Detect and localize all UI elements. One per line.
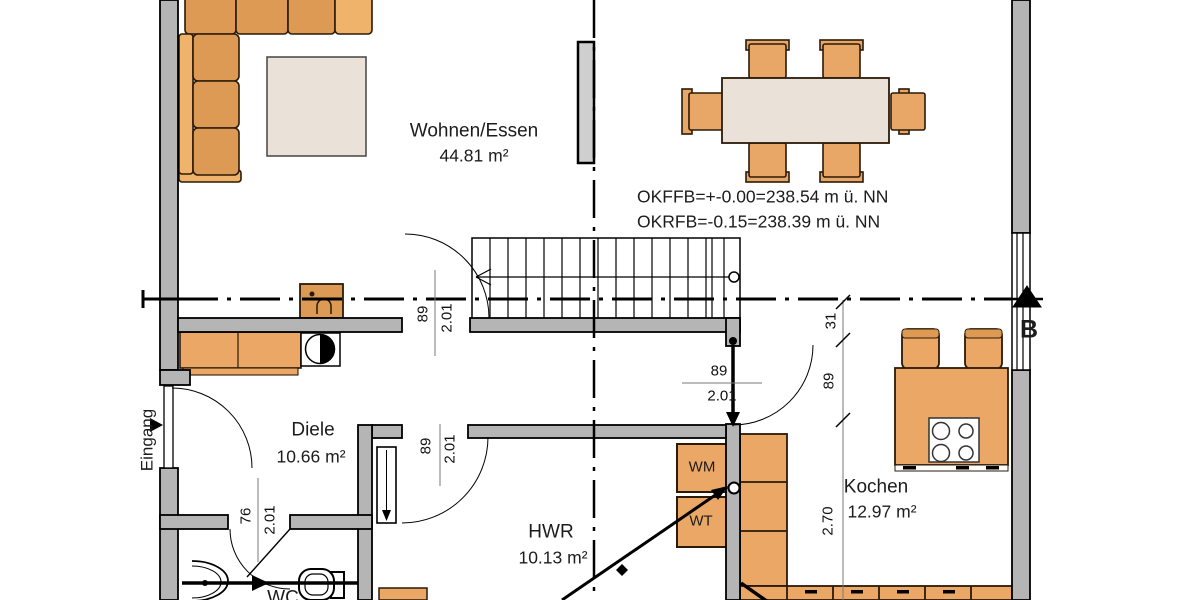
room-area-kochen: 12.97 m² <box>847 503 916 521</box>
dim-hwr-door-height: 2.01 <box>443 434 458 463</box>
cooktop-icon <box>929 418 979 462</box>
dryer-label: WT <box>689 514 712 529</box>
half-circle-symbol <box>301 333 340 366</box>
room-label-diele: Diele <box>291 421 334 440</box>
dim-kitchen-seg-b: 89 <box>822 373 837 390</box>
floor-plan: Wohnen/Essen 44.81 m² OKFFB=+-0.00=238.5… <box>0 0 1200 600</box>
dim-stair-door-width: 89 <box>416 306 431 323</box>
room-area-wohnen: 44.81 m² <box>439 147 508 165</box>
staircase <box>472 238 740 320</box>
entrance-label: Eingang <box>139 409 156 471</box>
floor-plan-canvas <box>0 0 1200 600</box>
dim-wc-door-height: 2.01 <box>263 505 278 534</box>
stove-symbol <box>300 284 343 318</box>
kitchen-island <box>895 329 1008 471</box>
dim-wc-door-width: 76 <box>239 508 254 525</box>
level-annotation-okrfb: OKRFB=-0.15=238.39 m ü. NN <box>637 213 880 231</box>
level-annotation-okffb: OKFFB=+-0.00=238.54 m ü. NN <box>637 188 888 206</box>
kitchen-door <box>726 337 813 427</box>
tall-cabinet-shaft <box>377 447 396 523</box>
dim-kitchen-depth: 2.70 <box>821 506 836 535</box>
washer-label: WM <box>689 460 716 475</box>
dim-kitchen-seg-a: 31 <box>824 313 839 330</box>
hall-sideboard <box>180 332 301 375</box>
room-label-hwr: HWR <box>528 523 573 542</box>
dim-stair-door-height: 2.01 <box>440 303 455 332</box>
dim-kitchen-door-height: 2.01 <box>707 389 736 404</box>
room-label-wc: WC <box>267 589 299 600</box>
dining-table <box>722 78 889 143</box>
coffee-table <box>267 57 366 156</box>
room-label-wohnen: Wohnen/Essen <box>410 122 539 141</box>
room-area-diele: 10.66 m² <box>276 448 345 466</box>
room-label-kochen: Kochen <box>844 478 908 497</box>
dim-kitchen-door-width: 89 <box>711 364 728 379</box>
dim-hwr-door-width: 89 <box>419 438 434 455</box>
section-marker-b: B <box>1020 318 1038 343</box>
chimney <box>578 42 594 163</box>
entrance-door <box>150 386 252 468</box>
hwr-cabinet <box>379 588 427 600</box>
dining-set <box>682 40 925 182</box>
room-area-hwr: 10.13 m² <box>518 549 587 567</box>
wc-sink <box>192 561 228 600</box>
